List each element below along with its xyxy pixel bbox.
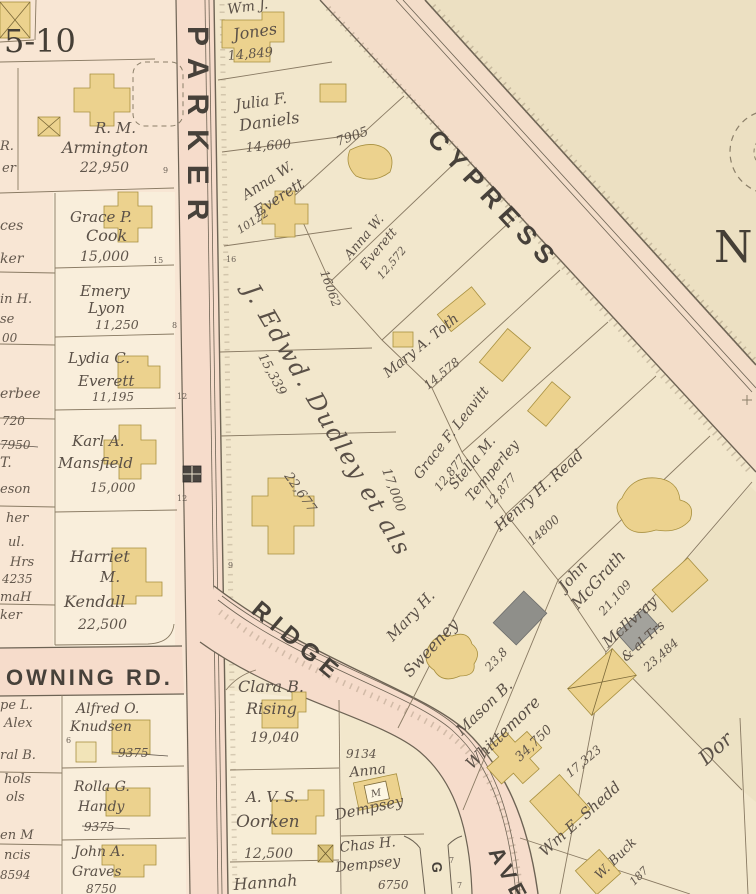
- svg-text:ul.: ul.: [8, 535, 25, 550]
- svg-text:9375: 9375: [84, 820, 115, 834]
- svg-text:Oorken: Oorken: [236, 812, 300, 832]
- svg-text:Harriet: Harriet: [69, 547, 130, 566]
- svg-text:ker: ker: [0, 608, 23, 623]
- shed-xbox: [38, 117, 60, 136]
- svg-text:Handy: Handy: [77, 799, 126, 815]
- svg-text:12: 12: [177, 494, 187, 503]
- svg-text:Emery: Emery: [79, 282, 130, 300]
- svg-text:19,040: 19,040: [250, 730, 299, 746]
- svg-text:Armington: Armington: [60, 138, 148, 157]
- svg-text:Rising: Rising: [245, 699, 297, 718]
- svg-text:00: 00: [2, 331, 18, 345]
- shed-xbox-small: [318, 845, 333, 862]
- plat-map: PARKER CYPRESS RIDGE AVE OWNING RD. G 5-…: [0, 0, 756, 894]
- svg-text:9: 9: [163, 166, 168, 175]
- svg-text:Cook: Cook: [86, 226, 127, 245]
- svg-text:Hrs: Hrs: [9, 555, 35, 570]
- svg-text:Mansfield: Mansfield: [57, 454, 133, 472]
- street-label-downing: OWNING RD.: [6, 665, 173, 690]
- svg-text:6: 6: [66, 736, 71, 745]
- svg-text:eson: eson: [0, 482, 31, 497]
- svg-text:en M: en M: [0, 828, 34, 843]
- block-number: 5-10: [4, 22, 76, 60]
- svg-text:Kendall: Kendall: [63, 592, 125, 611]
- street-label-fragment: G: [429, 862, 445, 874]
- svg-text:Lyon: Lyon: [87, 299, 125, 317]
- svg-text:Alex: Alex: [3, 716, 33, 731]
- svg-text:6750: 6750: [378, 878, 409, 892]
- svg-text:4235: 4235: [1, 572, 33, 586]
- compass-letter: N: [714, 222, 753, 273]
- svg-text:16: 16: [226, 255, 236, 264]
- svg-text:in H.: in H.: [0, 292, 32, 307]
- atlas-map-page: PARKER CYPRESS RIDGE AVE OWNING RD. G 5-…: [0, 0, 756, 894]
- svg-text:Clara B.: Clara B.: [238, 677, 304, 696]
- svg-text:7950: 7950: [0, 438, 31, 452]
- svg-text:Lydia C.: Lydia C.: [67, 349, 130, 367]
- svg-text:720: 720: [2, 414, 25, 428]
- svg-text:8594: 8594: [0, 868, 31, 882]
- svg-text:ols: ols: [6, 790, 25, 805]
- svg-text:22,950: 22,950: [79, 160, 129, 176]
- svg-text:Grace P.: Grace P.: [70, 208, 132, 226]
- svg-text:12,500: 12,500: [244, 846, 293, 862]
- svg-text:15,000: 15,000: [90, 481, 136, 496]
- svg-text:8750: 8750: [86, 882, 117, 894]
- svg-text:8: 8: [172, 321, 177, 330]
- svg-text:T.: T.: [0, 455, 12, 471]
- svg-text:22,500: 22,500: [77, 617, 127, 633]
- svg-text:R.: R.: [0, 139, 14, 154]
- svg-text:15,000: 15,000: [80, 249, 129, 265]
- svg-text:Everett: Everett: [77, 372, 135, 390]
- svg-text:Karl A.: Karl A.: [71, 432, 125, 450]
- svg-text:A. V. S.: A. V. S.: [244, 788, 299, 806]
- svg-text:9: 9: [228, 561, 233, 570]
- svg-text:12: 12: [177, 392, 187, 401]
- svg-text:maH: maH: [0, 590, 32, 605]
- svg-text:se: se: [0, 312, 15, 327]
- svg-text:11,250: 11,250: [95, 317, 139, 332]
- house-daniels: [320, 84, 346, 102]
- svg-text:ral B.: ral B.: [0, 748, 36, 763]
- svg-text:7: 7: [449, 856, 454, 865]
- parcel-label-oorken: A. V. S. Oorken 12,500: [236, 788, 300, 862]
- svg-text:15: 15: [153, 256, 163, 265]
- svg-text:er: er: [2, 161, 17, 176]
- svg-text:ker: ker: [0, 251, 25, 267]
- svg-text:ces: ces: [0, 218, 23, 234]
- svg-text:her: her: [6, 511, 29, 526]
- svg-text:9375: 9375: [118, 746, 149, 760]
- outbuilding: [76, 742, 96, 762]
- svg-text:Rolla G.: Rolla G.: [73, 779, 130, 795]
- svg-text:Knudsen: Knudsen: [69, 719, 132, 735]
- svg-text:7: 7: [457, 881, 462, 890]
- house-everett-7905: [348, 144, 392, 179]
- utility-box-parker: [183, 466, 201, 482]
- svg-text:erbee: erbee: [0, 386, 41, 402]
- svg-text:Graves: Graves: [72, 864, 122, 880]
- svg-text:ncis: ncis: [4, 848, 31, 863]
- svg-text:9134: 9134: [346, 747, 377, 761]
- svg-text:R. M.: R. M.: [94, 119, 136, 137]
- svg-text:Alfred O.: Alfred O.: [74, 701, 139, 717]
- svg-text:John A.: John A.: [71, 844, 125, 860]
- svg-text:M.: M.: [99, 568, 120, 586]
- street-label-parker: PARKER: [181, 26, 214, 234]
- svg-text:11,195: 11,195: [92, 390, 134, 404]
- svg-text:pe L.: pe L.: [0, 698, 33, 713]
- svg-text:hols: hols: [4, 772, 31, 787]
